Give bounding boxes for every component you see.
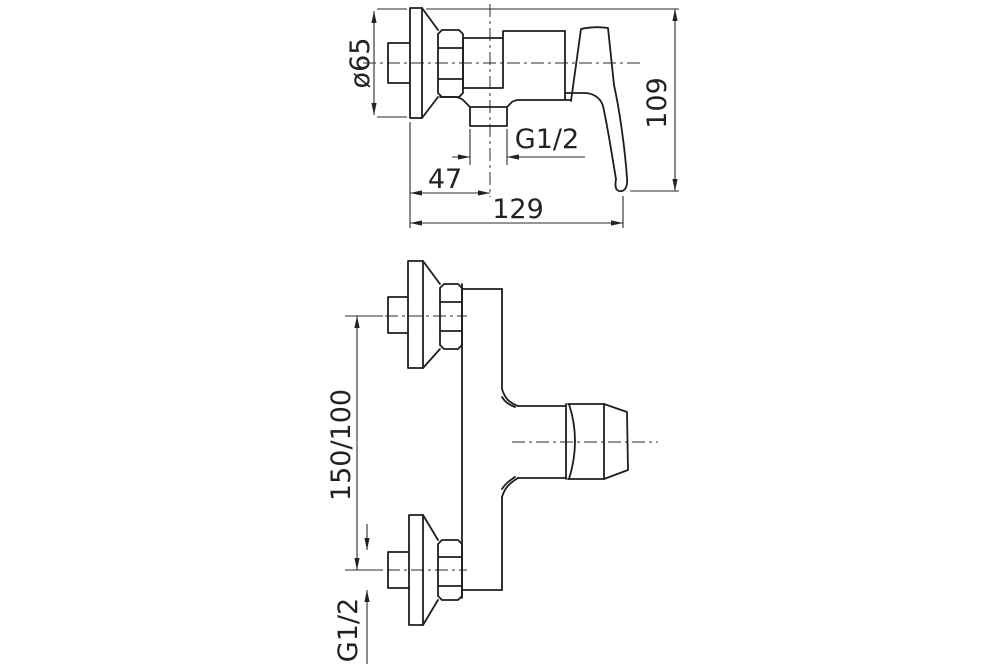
body-bottom-edge: [440, 97, 470, 107]
top-flange-cone: [423, 261, 440, 368]
front-view: 150/100 G1/2: [326, 261, 658, 664]
dim-label-wall-to-outlet: 47: [428, 164, 462, 195]
outlet-port: [470, 107, 507, 126]
side-view-mixer-outline: [388, 8, 627, 191]
side-view-dimensions: ø65 109 G1/2 47 129: [345, 9, 679, 228]
neck-upper-fillet-2: [502, 397, 515, 407]
dim-label-connection-spacing: 150/100: [326, 389, 357, 501]
dim-label-overall-height: 109: [642, 77, 673, 129]
technical-drawing-page: ø65 109 G1/2 47 129: [0, 0, 1000, 667]
top-wall-flange: [408, 261, 423, 368]
dim-label-outlet-thread: G1/2: [515, 124, 579, 155]
front-view-dimensions: 150/100 G1/2: [326, 316, 383, 664]
handle-head: [571, 27, 614, 101]
bottom-hex-nut-faces: [438, 557, 462, 586]
mixer-technical-drawing: ø65 109 G1/2 47 129: [0, 0, 1000, 667]
neck-lower-fillet-2: [502, 477, 515, 489]
dim-label-overall-depth: 129: [492, 194, 544, 225]
top-pipe-stub: [388, 297, 408, 333]
side-view: ø65 109 G1/2 47 129: [345, 4, 679, 228]
dim-label-connection-thread: G1/2: [333, 598, 364, 662]
body-bottom-right-edge: [507, 100, 571, 107]
dim-label-flange-diameter: ø65: [345, 38, 376, 89]
body-top-edge: [503, 31, 565, 38]
neck-upper-fillet: [502, 389, 518, 406]
